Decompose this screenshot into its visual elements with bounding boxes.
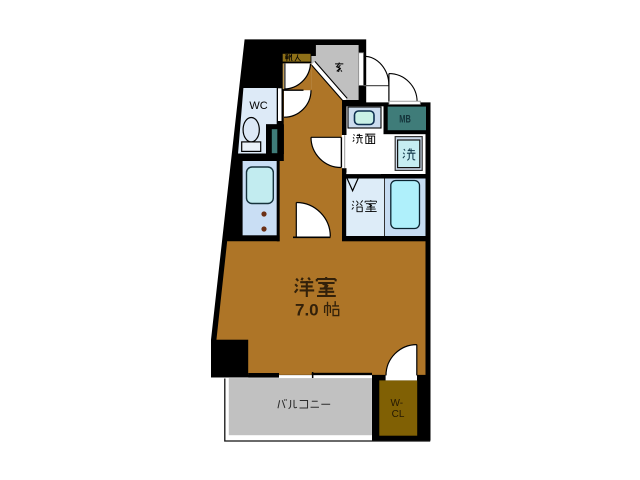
svg-text:7.0: 7.0 — [295, 301, 319, 320]
svg-text:WC: WC — [249, 100, 267, 112]
svg-text:W-: W- — [391, 398, 404, 409]
svg-text:CL: CL — [392, 409, 405, 420]
svg-text:MB: MB — [399, 113, 411, 125]
